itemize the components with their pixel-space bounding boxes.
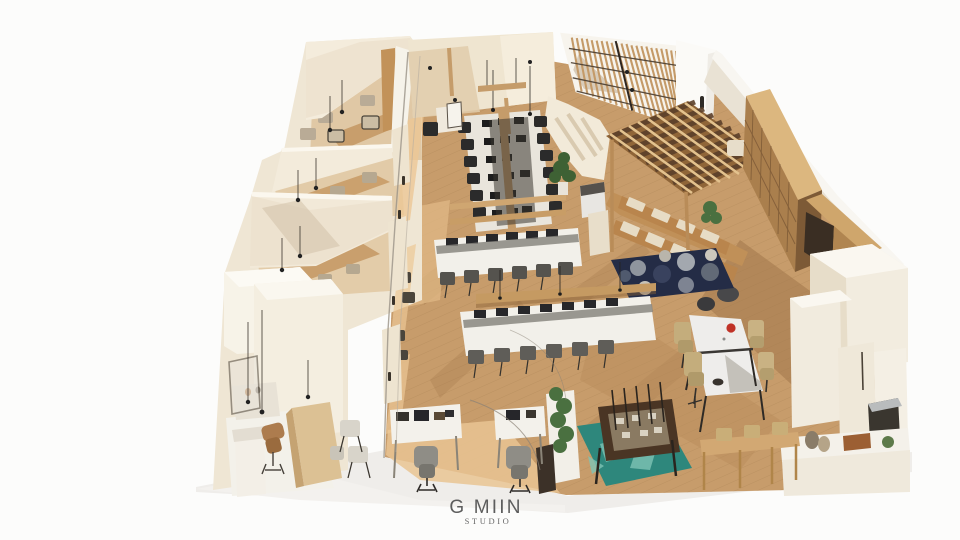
svg-text:G MIIN: G MIIN (449, 497, 522, 518)
svg-text:STUDIO: STUDIO (465, 516, 512, 526)
